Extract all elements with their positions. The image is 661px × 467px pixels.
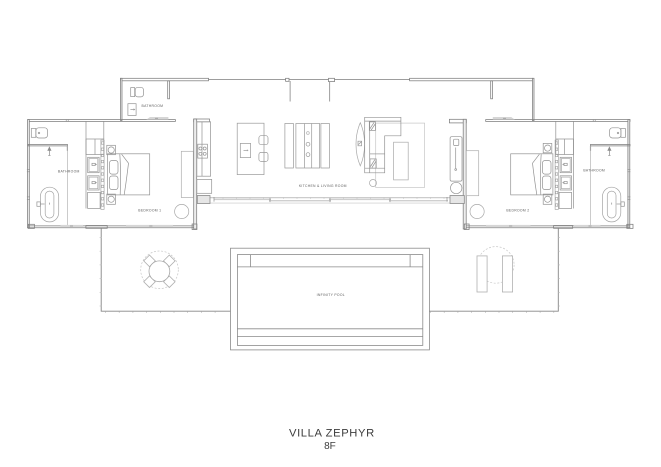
svg-text:BATHROOM: BATHROOM: [583, 169, 605, 173]
svg-text:BEDROOM 2: BEDROOM 2: [506, 209, 529, 213]
svg-text:VILLA ZEPHYR: VILLA ZEPHYR: [289, 427, 375, 439]
svg-text:BATHROOM: BATHROOM: [142, 104, 164, 108]
svg-text:BATHROOM: BATHROOM: [58, 170, 80, 174]
svg-text:8F: 8F: [324, 441, 336, 452]
svg-text:KITCHEN & LIVING ROOM: KITCHEN & LIVING ROOM: [299, 184, 347, 188]
svg-text:INFINITY POOL: INFINITY POOL: [317, 293, 345, 297]
svg-text:BEDROOM 1: BEDROOM 1: [138, 209, 161, 213]
